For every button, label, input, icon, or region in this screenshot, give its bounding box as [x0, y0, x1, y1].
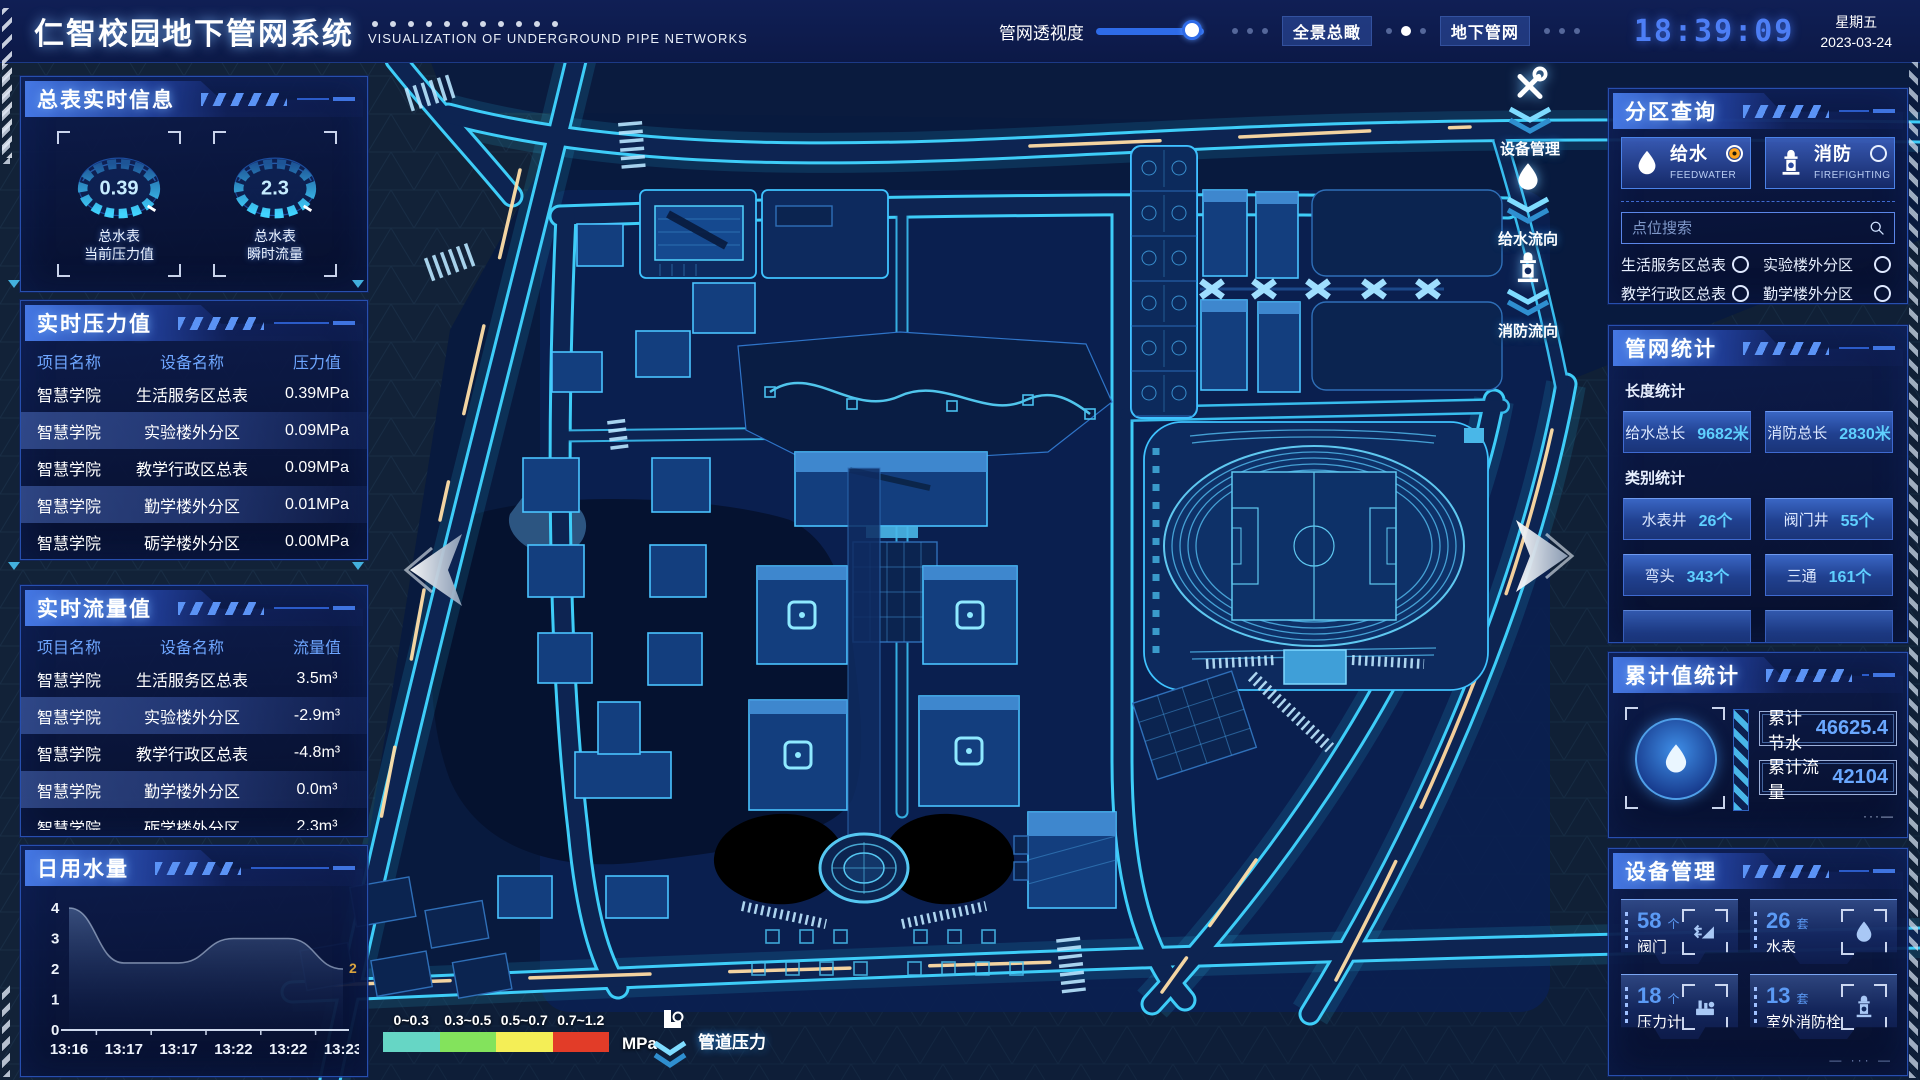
svg-text:1: 1 — [51, 992, 59, 1009]
table-header: 项目名称 设备名称 流量值 — [21, 632, 367, 660]
pipe-network-stats-panel: 管网统计 长度统计 给水总长9682米消防总长2830米 类别统计 水表井26个… — [1608, 325, 1908, 643]
table-cell: 砺学楼外分区 — [117, 815, 267, 831]
stat-value: 42104 — [1832, 766, 1888, 789]
table-cell: 实验楼外分区 — [117, 704, 267, 728]
panorama-view-button[interactable]: 全景总瞰 — [1282, 16, 1372, 46]
device-unit: 个 — [1667, 992, 1679, 1006]
stat-label: 累计流量 — [1768, 753, 1832, 803]
category-stats-label: 类别统计 — [1625, 467, 1907, 488]
panel-title: 管网统计 — [1625, 333, 1717, 363]
table-cell: 生活服务区总表 — [117, 382, 267, 406]
stat-box: 水表井26个 — [1623, 498, 1751, 540]
stadium — [1144, 422, 1488, 690]
tool-device-management[interactable]: 设备管理 — [1494, 64, 1566, 159]
device-name: 室外消防栓 — [1766, 1011, 1841, 1032]
table-cell: 智慧学院 — [21, 419, 117, 443]
length-stats-grid: 给水总长9682米消防总长2830米 — [1623, 411, 1893, 453]
table-row: 智慧学院勤学楼外分区0.0m³ — [21, 771, 367, 808]
device-card[interactable]: 18个压力计 — [1621, 974, 1738, 1039]
stat-value: 161个 — [1829, 563, 1872, 587]
device-name: 压力计 — [1637, 1011, 1682, 1032]
stat-name: 给水总长 — [1625, 422, 1685, 443]
table-row: 智慧学院生活服务区总表3.5m³ — [21, 660, 367, 697]
pressure-table-body: 智慧学院生活服务区总表0.39MPa智慧学院实验楼外分区0.09MPa智慧学院教… — [21, 375, 367, 553]
tool-label: 设备管理 — [1500, 138, 1560, 159]
svg-text:13:17: 13:17 — [105, 1041, 143, 1058]
device-name: 水表 — [1766, 936, 1841, 957]
search-icon[interactable] — [1868, 219, 1886, 237]
stat-box-clipped — [1623, 610, 1751, 643]
table-cell: 0.01MPa — [267, 496, 367, 514]
device-unit: 个 — [1667, 917, 1679, 931]
gauge-label: 总水表 — [57, 227, 181, 245]
se-hall-building — [1014, 812, 1116, 908]
hazard-stripe-divider — [1733, 709, 1749, 811]
device-name: 阀门 — [1637, 936, 1682, 957]
table-cell: 砺学楼外分区 — [117, 530, 267, 554]
search-input[interactable] — [1630, 219, 1868, 238]
length-stats-label: 长度统计 — [1625, 380, 1907, 401]
stat-box: 三通161个 — [1765, 554, 1893, 596]
water-drop-icon — [1658, 741, 1694, 777]
table-row: 智慧学院教学行政区总表0.09MPa — [21, 449, 367, 486]
meter-info-panel: 总表实时信息 0.39 总水表 当前压力值 2.3 总水表 瞬时流量 — [20, 76, 368, 292]
gauge-dial: 0.39 — [63, 139, 175, 227]
daily-water-chart: 0123413:1613:1713:1713:2213:2213:232 — [29, 892, 359, 1068]
device-card[interactable]: 58个阀门 — [1621, 899, 1738, 964]
ellipsis-decoration: — ··· — — [1829, 1053, 1893, 1067]
header-dots — [372, 21, 748, 27]
svg-text:2: 2 — [51, 961, 59, 978]
stat-value: 46625.4 — [1816, 717, 1888, 740]
table-cell: -2.9m³ — [267, 707, 367, 725]
zone-item-radio[interactable] — [1874, 256, 1891, 273]
table-row: 智慧学院砺学楼外分区2.3m³ — [21, 808, 367, 830]
header-bar: 仁智校园地下管网系统 VISUALIZATION OF UNDERGROUND … — [0, 0, 1920, 63]
device-card[interactable]: 26套水表 — [1750, 899, 1897, 964]
gauge-dial: 2.3 — [219, 139, 331, 227]
pipe-opacity-slider[interactable] — [1096, 20, 1204, 42]
legend-label: 管道压力 — [698, 1028, 766, 1053]
device-count: 18 — [1637, 983, 1661, 1008]
stat-label: 累计节水 — [1768, 704, 1816, 754]
table-cell: 智慧学院 — [21, 704, 117, 728]
svg-text:3: 3 — [51, 931, 59, 948]
tab-firefighting[interactable]: 消防 FIREFIGHTING — [1765, 137, 1895, 189]
left-edge-decoration — [2, 64, 10, 164]
zone-device-list: 生活服务区总表实验楼外分区教学行政区总表勤学楼外分区砺学楼外分区宿舍区泵房 — [1621, 250, 1895, 304]
table-cell: 生活服务区总表 — [117, 667, 267, 691]
device-count: 58 — [1637, 908, 1661, 933]
svg-text:13:22: 13:22 — [269, 1041, 307, 1058]
chevron-down-icon — [1505, 196, 1551, 224]
stat-name: 水表井 — [1642, 509, 1687, 530]
clock-date: 2023-03-24 — [1820, 34, 1892, 50]
table-cell: 智慧学院 — [21, 382, 117, 406]
tab-label: 消防 — [1814, 144, 1852, 164]
zone-item-radio[interactable] — [1732, 285, 1749, 302]
svg-text:13:17: 13:17 — [159, 1041, 197, 1058]
zone-item-radio[interactable] — [1732, 256, 1749, 273]
table-cell: 智慧学院 — [21, 493, 117, 517]
legend-range-label: 0~0.3 — [383, 1012, 440, 1028]
zone-item-label: 勤学楼外分区 — [1763, 283, 1853, 304]
table-cell: 智慧学院 — [21, 456, 117, 480]
app-subtitle: VISUALIZATION OF UNDERGROUND PIPE NETWOR… — [368, 31, 748, 46]
gauge-value: 2.3 — [261, 177, 289, 199]
zone-list-item[interactable]: 勤学楼外分区 — [1763, 279, 1895, 304]
panel-title: 总表实时信息 — [37, 84, 175, 114]
panel-title: 实时压力值 — [37, 308, 152, 338]
svg-text:13:22: 13:22 — [214, 1041, 252, 1058]
legend-color-segment — [383, 1032, 440, 1052]
circular-plaza — [820, 834, 908, 902]
dashboard-root: 仁智校园地下管网系统 VISUALIZATION OF UNDERGROUND … — [0, 0, 1920, 1080]
flow-gauge-card: 2.3 总水表 瞬时流量 — [213, 131, 337, 277]
water-saving-emblem — [1625, 707, 1725, 809]
tab-sublabel: FIREFIGHTING — [1814, 170, 1891, 181]
realtime-flow-panel: 实时流量值 项目名称 设备名称 流量值 智慧学院生活服务区总表3.5m³智慧学院… — [20, 585, 368, 837]
stat-box: 弯头343个 — [1623, 554, 1751, 596]
pressure-legend-bar — [383, 1032, 609, 1052]
tool-label: 给水流向 — [1498, 228, 1558, 249]
table-row: 智慧学院实验楼外分区-2.9m³ — [21, 697, 367, 734]
legend-color-segment — [496, 1032, 553, 1052]
table-cell: 0.39MPa — [267, 385, 367, 403]
accumulated-saving-row: 累计节水 46625.4 — [1759, 711, 1897, 746]
chevron-down-icon — [652, 1040, 688, 1070]
table-cell: -4.8m³ — [267, 744, 367, 762]
left-edge-decoration — [2, 985, 10, 1077]
right-edge-decoration — [1909, 62, 1918, 1078]
pressure-gauge-icon — [652, 1006, 688, 1040]
football-pitch — [1232, 472, 1396, 620]
central-garden — [738, 332, 1112, 460]
legend-range-label: 0.7~1.2 — [553, 1012, 610, 1028]
panel-title: 设备管理 — [1625, 856, 1717, 886]
tool-label: 消防流向 — [1498, 320, 1558, 341]
table-cell: 0.0m³ — [267, 781, 367, 799]
table-cell: 2.3m³ — [267, 818, 367, 831]
hydrant-icon — [1841, 984, 1887, 1030]
zone-query-panel: 分区查询 给水 FEEDWATER 消防 FIREFIGHTING 生活服务区总… — [1608, 88, 1908, 304]
table-cell: 智慧学院 — [21, 741, 117, 765]
device-management-panel: 设备管理 58个阀门26套水表18个压力计13套室外消防栓 — ··· — — [1608, 848, 1908, 1076]
legend-color-segment — [440, 1032, 497, 1052]
stat-name: 弯头 — [1645, 565, 1675, 586]
clock-time: 18:39:09 — [1634, 14, 1795, 49]
device-unit: 套 — [1797, 992, 1809, 1006]
pipe-opacity-label: 管网透视度 — [999, 19, 1084, 44]
stat-name: 三通 — [1787, 565, 1817, 586]
table-row: 智慧学院生活服务区总表0.39MPa — [21, 375, 367, 412]
zone-item-label: 教学行政区总表 — [1621, 283, 1726, 304]
accumulated-stats-panel: 累计值统计 累计节水 46625.4 累计流量 42104 ···— — [1608, 652, 1908, 838]
table-cell: 智慧学院 — [21, 778, 117, 802]
panel-title: 实时流量值 — [37, 593, 152, 623]
pressure-legend-labels: 0~0.30.3~0.50.5~0.70.7~1.2 — [383, 1012, 609, 1028]
table-cell: 实验楼外分区 — [117, 419, 267, 443]
table-cell: 0.00MPa — [267, 533, 367, 551]
legend-color-segment — [553, 1032, 610, 1052]
stat-value: 343个 — [1687, 563, 1730, 587]
flow-table-body: 智慧学院生活服务区总表3.5m³智慧学院实验楼外分区-2.9m³智慧学院教学行政… — [21, 660, 367, 830]
zone-item-label: 生活服务区总表 — [1621, 254, 1726, 275]
zone-item-label: 实验楼外分区 — [1763, 254, 1853, 275]
table-cell: 3.5m³ — [267, 670, 367, 688]
panel-title: 分区查询 — [1625, 96, 1717, 126]
separator-dots — [1386, 26, 1426, 36]
gauge-metric: 瞬时流量 — [213, 245, 337, 263]
hydrant-icon — [1510, 250, 1546, 286]
gauge-label: 总水表 — [213, 227, 337, 245]
daily-water-panel: 日用水量 0123413:1613:1713:1713:2213:2213:23… — [20, 845, 368, 1077]
stat-value: 26个 — [1699, 507, 1733, 531]
panel-header: 总表实时信息 — [25, 81, 363, 117]
category-stats-grid: 水表井26个阀门井55个弯头343个三通161个 — [1623, 498, 1893, 643]
table-cell: 勤学楼外分区 — [117, 493, 267, 517]
legend-range-label: 0.5~0.7 — [496, 1012, 553, 1028]
panel-title: 累计值统计 — [1625, 660, 1740, 690]
zone-item-radio[interactable] — [1874, 285, 1891, 302]
table-cell: 智慧学院 — [21, 530, 117, 554]
tools-wrench-icon — [1510, 64, 1550, 104]
pressure-gauge-icon — [1682, 984, 1728, 1030]
stat-box: 阀门井55个 — [1765, 498, 1893, 540]
sports-courts-strip — [1131, 146, 1197, 418]
table-cell: 智慧学院 — [21, 667, 117, 691]
device-count: 26 — [1766, 908, 1790, 933]
table-row: 智慧学院勤学楼外分区0.01MPa — [21, 486, 367, 523]
table-cell: 教学行政区总表 — [117, 456, 267, 480]
clock-weekday: 星期五 — [1835, 12, 1877, 32]
library-building — [795, 452, 987, 538]
stat-box: 给水总长9682米 — [1623, 411, 1751, 453]
stat-value: 55个 — [1841, 507, 1875, 531]
table-row: 智慧学院实验楼外分区0.09MPa — [21, 412, 367, 449]
hydrant-icon — [1776, 148, 1806, 178]
legend-range-label: 0.3~0.5 — [440, 1012, 497, 1028]
tool-firefighting-flow[interactable]: 消防流向 — [1492, 250, 1564, 341]
tool-feedwater-flow[interactable]: 给水流向 — [1492, 160, 1564, 249]
stat-value: 2830米 — [1839, 420, 1891, 444]
panel-title: 日用水量 — [37, 853, 129, 883]
tab-feedwater[interactable]: 给水 FEEDWATER — [1621, 137, 1751, 189]
chevron-down-icon — [1507, 106, 1553, 134]
stat-box-clipped — [1765, 610, 1893, 643]
gauge-metric: 当前压力值 — [57, 245, 181, 263]
svg-text:0: 0 — [51, 1022, 59, 1039]
realtime-pressure-panel: 实时压力值 项目名称 设备名称 压力值 智慧学院生活服务区总表0.39MPa智慧… — [20, 300, 368, 560]
point-search-box[interactable] — [1621, 212, 1895, 244]
stat-box: 消防总长2830米 — [1765, 411, 1893, 453]
dashed-divider — [1621, 201, 1895, 202]
separator-dots — [1544, 28, 1580, 34]
water-meter-icon — [1841, 909, 1887, 955]
valve-icon — [1682, 909, 1728, 955]
underground-pipes-button[interactable]: 地下管网 — [1440, 16, 1530, 46]
ellipsis-decoration: ···— — [1863, 809, 1895, 823]
slider-thumb[interactable] — [1182, 20, 1202, 40]
stat-name: 阀门井 — [1784, 509, 1829, 530]
water-drop-icon — [1511, 160, 1545, 194]
tab-label: 给水 — [1670, 144, 1708, 164]
app-title: 仁智校园地下管网系统 — [34, 9, 354, 53]
table-header: 项目名称 设备名称 压力值 — [21, 347, 367, 375]
table-cell: 教学行政区总表 — [117, 741, 267, 765]
table-cell: 勤学楼外分区 — [117, 778, 267, 802]
pressure-gauge-card: 0.39 总水表 当前压力值 — [57, 131, 181, 277]
stat-value: 9682米 — [1697, 420, 1749, 444]
tab-sublabel: FEEDWATER — [1670, 170, 1736, 181]
device-card[interactable]: 13套室外消防栓 — [1750, 974, 1897, 1039]
stat-name: 消防总长 — [1767, 422, 1827, 443]
table-cell: 智慧学院 — [21, 815, 117, 831]
table-row: 智慧学院教学行政区总表-4.8m³ — [21, 734, 367, 771]
gauge-value: 0.39 — [99, 177, 138, 199]
tab-radio[interactable] — [1726, 145, 1743, 162]
device-count: 13 — [1766, 983, 1790, 1008]
stadium-stand-building — [1284, 650, 1346, 684]
svg-text:13:16: 13:16 — [50, 1041, 88, 1058]
svg-text:2: 2 — [349, 960, 357, 976]
svg-text:13:23: 13:23 — [324, 1041, 359, 1058]
table-cell: 0.09MPa — [267, 422, 367, 440]
table-row: 智慧学院砺学楼外分区0.00MPa — [21, 523, 367, 553]
device-card-grid: 58个阀门26套水表18个压力计13套室外消防栓 — [1621, 899, 1895, 1039]
slash-decoration — [201, 93, 287, 106]
zone-list-item[interactable]: 教学行政区总表 — [1621, 279, 1753, 304]
tab-radio[interactable] — [1870, 145, 1887, 162]
svg-text:4: 4 — [51, 900, 60, 917]
chevron-down-icon — [1505, 288, 1551, 316]
accumulated-flow-row: 累计流量 42104 — [1759, 760, 1897, 795]
zone-list-item[interactable]: 生活服务区总表 — [1621, 250, 1753, 279]
water-drop-icon — [1632, 148, 1662, 178]
device-unit: 套 — [1797, 917, 1809, 931]
zone-list-item[interactable]: 实验楼外分区 — [1763, 250, 1895, 279]
separator-dots — [1232, 28, 1268, 34]
table-cell: 0.09MPa — [267, 459, 367, 477]
